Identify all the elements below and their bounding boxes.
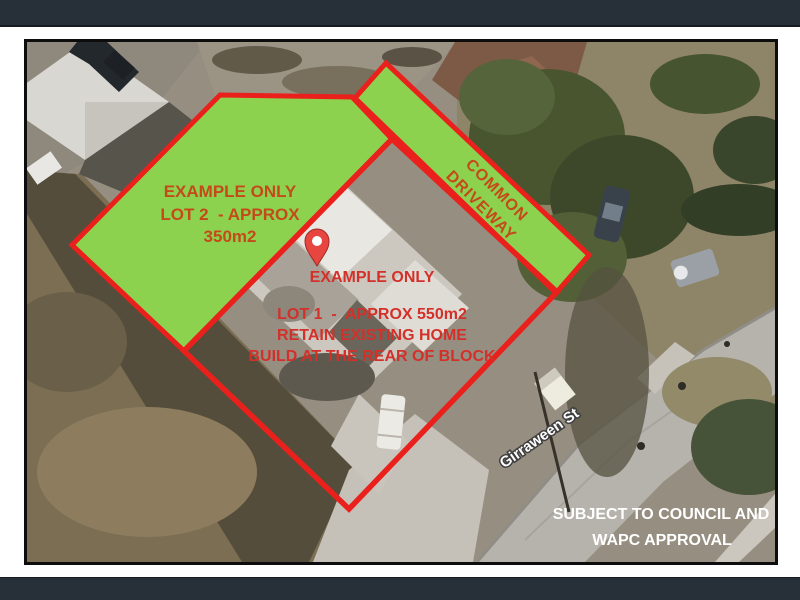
lot2-label-line2: LOT 2 - APPROX (160, 205, 300, 224)
listing-image: EXAMPLE ONLY LOT 2 - APPROX 350m2 EXAMPL… (0, 0, 800, 600)
top-bar (0, 0, 800, 27)
approval-note-line2: WAPC APPROVAL (592, 532, 732, 549)
lot1-label-line4: BUILD AT THE REAR OF BLOCK (248, 348, 496, 365)
lot1-label-line1: EXAMPLE ONLY (310, 269, 435, 286)
lot1-label-line3: RETAIN EXISTING HOME (277, 327, 467, 344)
lot2-label-line3: 350m2 (204, 227, 257, 246)
aerial-photo-frame: EXAMPLE ONLY LOT 2 - APPROX 350m2 EXAMPL… (24, 39, 778, 565)
bottom-bar (0, 577, 800, 600)
approval-note-line1: SUBJECT TO COUNCIL AND (553, 506, 770, 523)
lot1-label-line2: LOT 1 - APPROX 550m2 (277, 306, 467, 323)
aerial-photo-canvas: EXAMPLE ONLY LOT 2 - APPROX 350m2 EXAMPL… (27, 42, 775, 562)
lot2-label-line1: EXAMPLE ONLY (164, 182, 297, 201)
